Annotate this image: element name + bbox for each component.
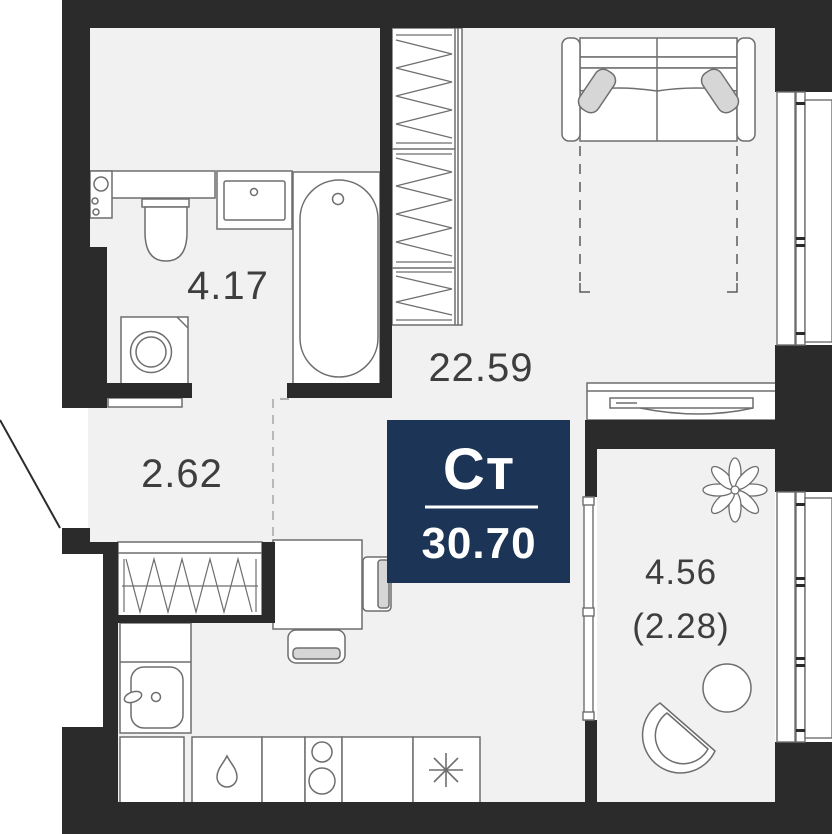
burner-large-icon (309, 768, 335, 794)
balcony-table-icon (703, 664, 751, 712)
unit-badge: Ст 30.70 (387, 420, 570, 583)
table-icon (273, 540, 362, 629)
wall-wardrobe-band (107, 615, 275, 623)
wall-left-top (62, 0, 90, 247)
living-area-label: 22.59 (428, 346, 533, 390)
chair-bottom-icon (288, 630, 345, 663)
sofa-bed-icon (562, 38, 755, 141)
wardrobe-living-icon (392, 28, 462, 325)
bathroom-area-label: 4.17 (187, 264, 269, 308)
wall-right-mid (775, 345, 832, 492)
wall-door-sill (62, 528, 90, 542)
wall-bathroom-bottom-left (105, 383, 192, 398)
bathroom-threshold (108, 398, 182, 407)
wall-balcony-top (585, 420, 777, 449)
wall-left-mid (62, 247, 107, 408)
bathtub-icon (293, 172, 380, 385)
tv-stand-icon (587, 383, 777, 420)
window-balcony (777, 492, 832, 742)
unit-type-label: Ст (443, 437, 515, 502)
kitchen-column-sink (120, 623, 191, 733)
kitchen-counter-row (120, 737, 480, 804)
balcony-area-reduced-label: (2.28) (632, 607, 729, 646)
wall-right-upper (775, 28, 832, 92)
floor-plan: Ст 30.70 4.17 22.59 2.62 4.56 (2.28) (0, 0, 832, 834)
entry-door-swing (0, 420, 60, 528)
wall-bathroom-bottom-right (287, 383, 392, 398)
unit-total-area: 30.70 (421, 519, 536, 568)
wall-wardrobe-stub (262, 542, 275, 623)
floor-plan-canvas: Ст 30.70 4.17 22.59 2.62 4.56 (2.28) (0, 0, 832, 834)
wall-left-jog (62, 542, 118, 554)
hallway-area-label: 2.62 (141, 452, 223, 496)
vanity-sink-icon (217, 171, 292, 229)
wardrobe-hallway-icon (118, 542, 262, 617)
plant-icon (703, 458, 767, 522)
washing-machine-icon (121, 317, 188, 387)
toilet-icon (142, 199, 189, 261)
balcony-glazed-partition (583, 497, 594, 720)
wall-right-lower (775, 742, 832, 834)
wall-balcony-stub-lower (585, 720, 597, 802)
balcony-area-label: 4.56 (645, 553, 717, 592)
hob-asterisk-icon (429, 753, 463, 787)
wall-bathroom-right (380, 28, 392, 398)
floor-hallway-upper (88, 398, 392, 554)
wall-left-lower (62, 727, 118, 802)
wall-top (62, 0, 832, 28)
burner-small-icon (312, 742, 332, 762)
wall-left-thin (103, 554, 118, 727)
wall-balcony-stub-upper (585, 449, 597, 497)
wall-bottom (62, 802, 777, 834)
chair-right-icon (363, 557, 391, 611)
window-living-room (777, 92, 832, 345)
